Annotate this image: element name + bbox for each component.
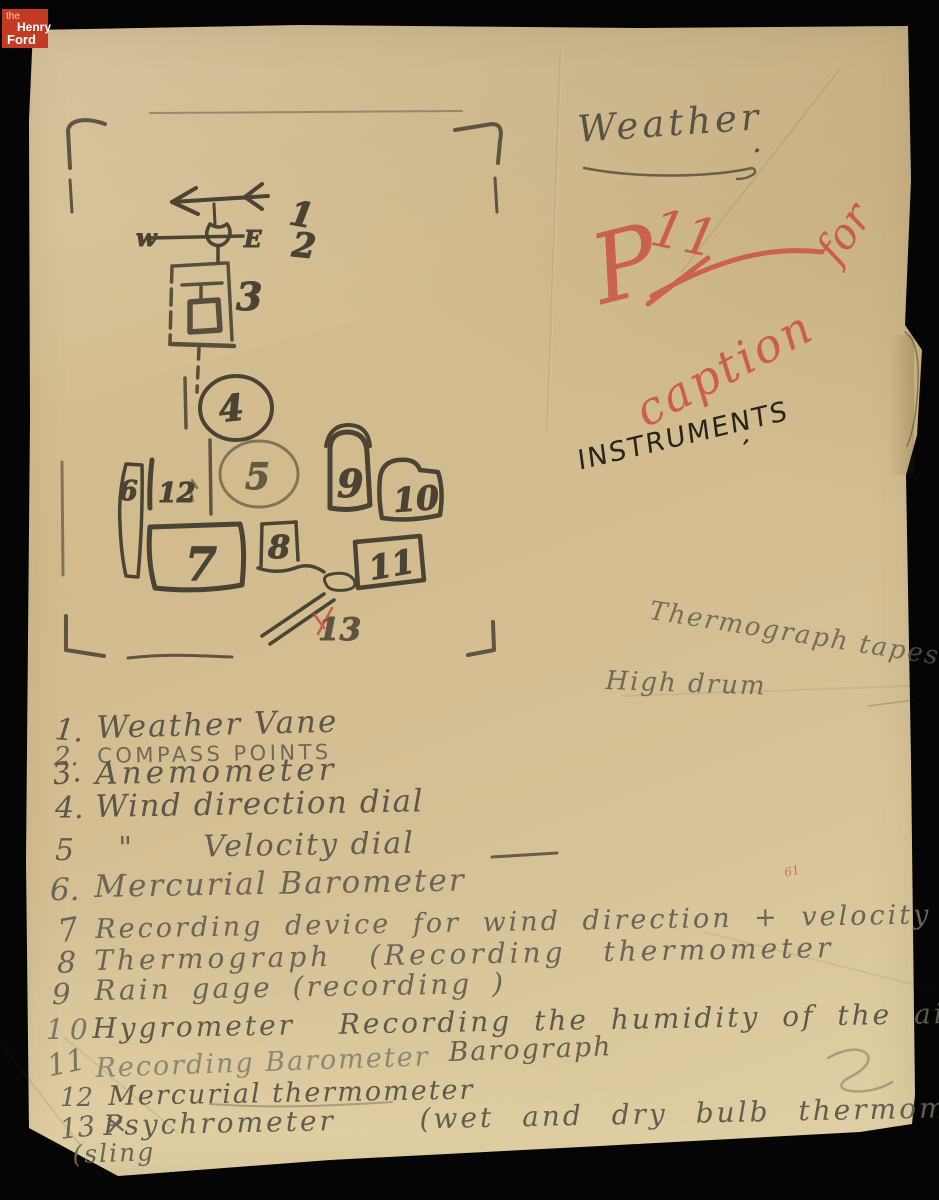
list-item-text: Wind direction dial	[95, 783, 424, 825]
label-5: 5	[245, 456, 270, 498]
label-7: 7	[185, 537, 217, 591]
label-13: 13	[318, 612, 361, 648]
compass-sketch	[150, 224, 243, 262]
logo-text-ford: Ford	[7, 33, 36, 46]
list-item-extra: Barograph	[448, 1031, 613, 1068]
henry-ford-logo: the Henry Ford	[2, 9, 48, 48]
label-12: 12	[158, 478, 196, 509]
label-2: 2	[289, 225, 318, 267]
anemometer-sketch	[170, 263, 234, 392]
label-10: 10	[392, 478, 441, 520]
compass-east-label: E	[243, 226, 262, 253]
list-item-number: 5	[55, 833, 74, 868]
sling-note: (sling	[72, 1137, 156, 1169]
label-3: 3	[236, 274, 262, 319]
list-item-number: 9	[52, 977, 70, 1011]
high-drum-note: High drum	[605, 666, 767, 702]
list-item-number: 4.	[55, 791, 84, 826]
list-item-number: 10	[46, 1013, 94, 1046]
list-item-text: Mercurial Barometer	[94, 863, 466, 905]
list-item-number: 8	[57, 946, 76, 981]
label-6: 6	[119, 476, 138, 507]
list-item-number: 12	[60, 1083, 93, 1113]
label-8: 8	[267, 528, 290, 566]
label-11: 11	[366, 541, 418, 587]
compass-west-label: w	[136, 223, 158, 252]
item5-dash	[492, 853, 557, 857]
label-4: 4	[217, 387, 246, 431]
list-item-number: 3.	[50, 754, 83, 793]
list-item-number: 6.	[50, 872, 80, 908]
thermometer-12-sketch	[150, 460, 152, 508]
scanned-document: the Henry Ford	[0, 0, 939, 1200]
label-9: 9	[337, 461, 363, 506]
weather-underline	[584, 168, 755, 179]
list-item-text: " Velocity dial	[118, 826, 415, 866]
weather-vane-sketch	[172, 184, 268, 224]
weather-period: .	[752, 122, 762, 160]
